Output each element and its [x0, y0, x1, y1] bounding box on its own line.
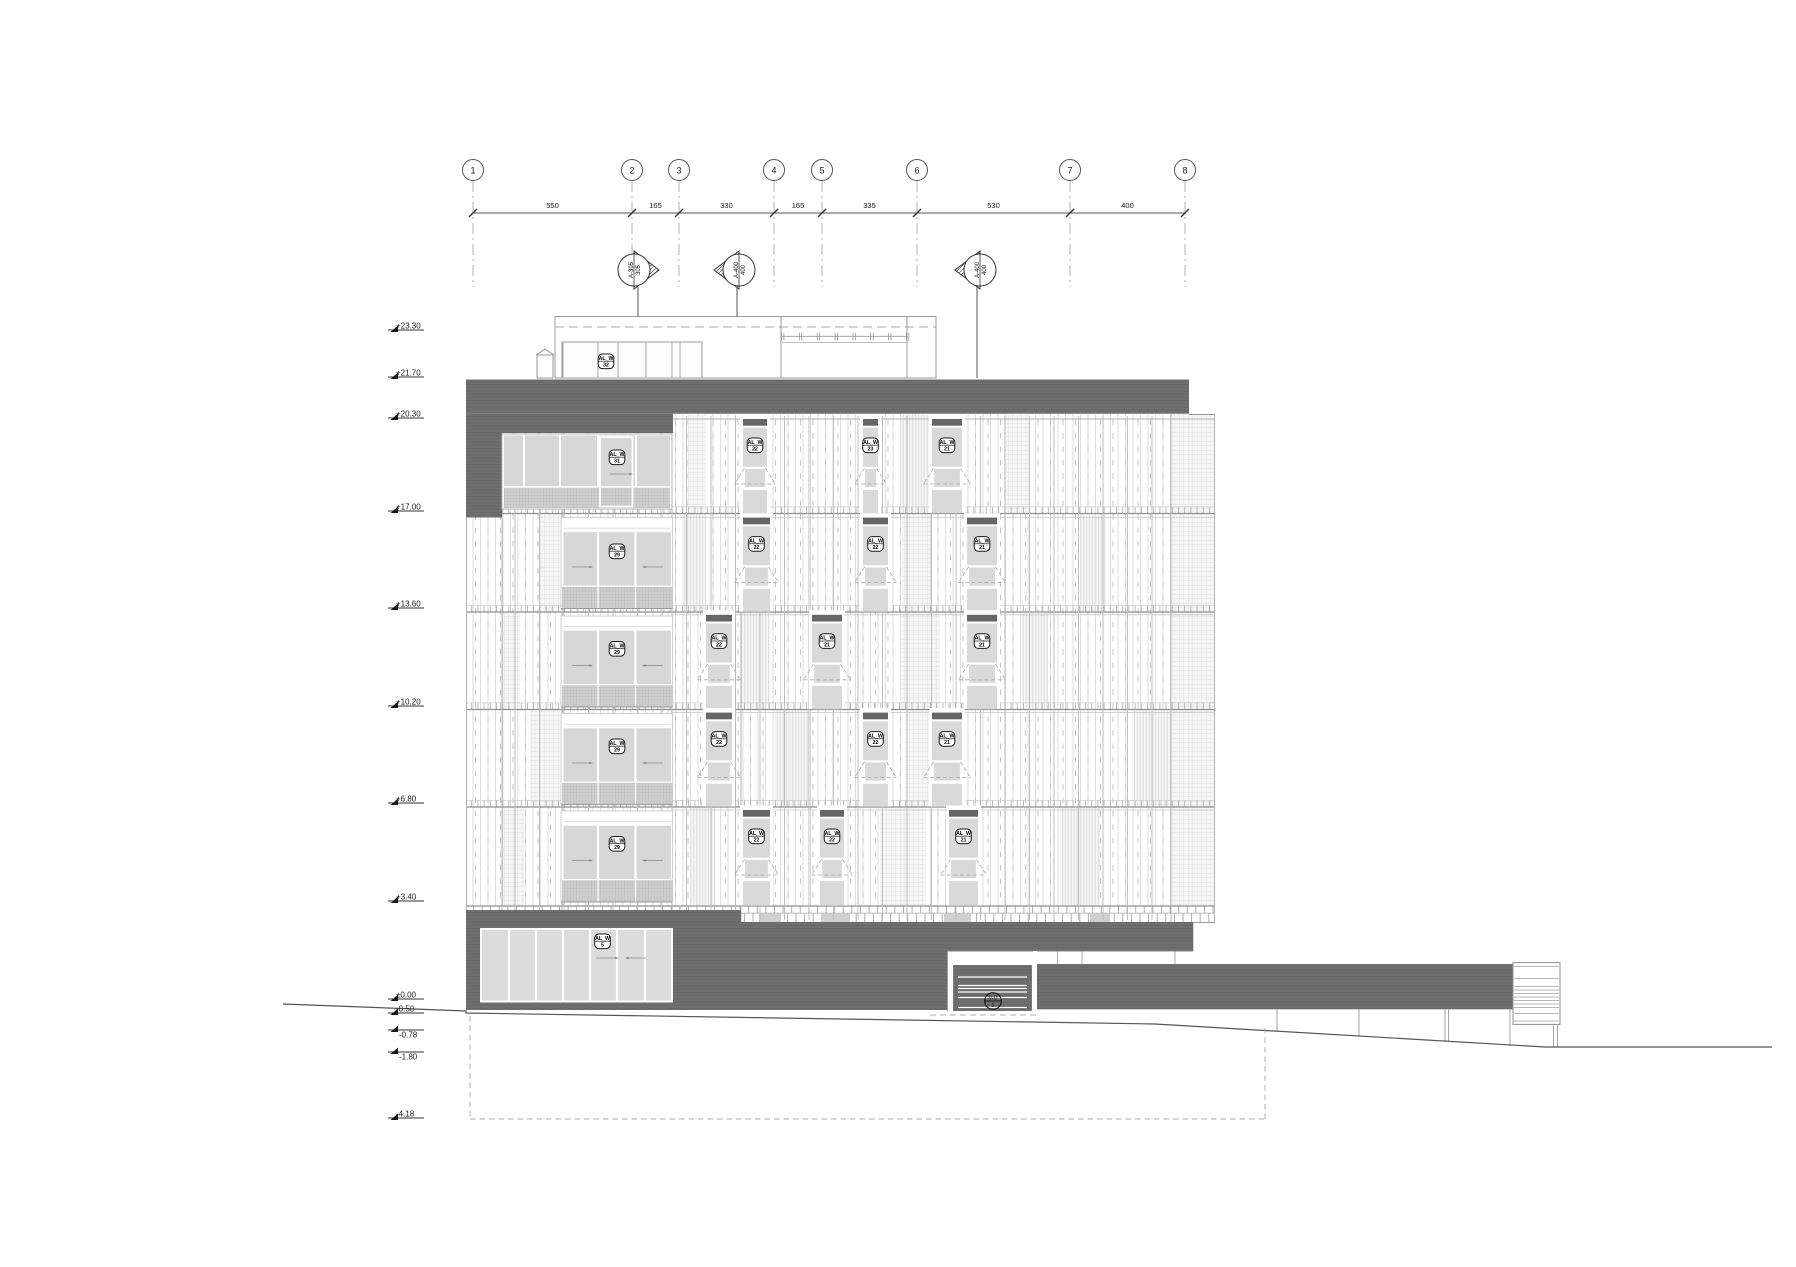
svg-text:1: 1: [470, 166, 475, 176]
svg-text:31: 31: [614, 459, 620, 465]
svg-text:550: 550: [546, 201, 559, 210]
svg-text:22: 22: [873, 545, 879, 551]
svg-text:2: 2: [629, 166, 634, 176]
svg-text:22: 22: [752, 447, 758, 453]
svg-text:32: 32: [603, 363, 609, 369]
svg-text:-4.18: -4.18: [396, 1110, 415, 1119]
svg-text:21: 21: [979, 545, 985, 551]
svg-text:5: 5: [601, 943, 604, 949]
svg-text:21: 21: [944, 740, 950, 746]
svg-text:22: 22: [829, 838, 835, 844]
svg-text:4: 4: [771, 166, 776, 176]
svg-text:23: 23: [868, 447, 874, 453]
svg-text:+10.20: +10.20: [396, 698, 421, 707]
svg-text:22: 22: [873, 740, 879, 746]
svg-text:21: 21: [824, 642, 830, 648]
svg-text:±0.00: ±0.00: [396, 991, 417, 1000]
svg-text:165: 165: [649, 201, 662, 210]
svg-text:-0.78: -0.78: [399, 1031, 418, 1040]
svg-text:+23.30: +23.30: [396, 322, 421, 331]
svg-text:335: 335: [863, 201, 876, 210]
svg-text:+17.00: +17.00: [396, 503, 421, 512]
svg-text:+6.80: +6.80: [396, 795, 417, 804]
svg-text:22: 22: [754, 545, 760, 551]
svg-text:3: 3: [676, 166, 681, 176]
svg-text:29: 29: [614, 748, 620, 754]
svg-text:-0.50: -0.50: [396, 1005, 415, 1014]
svg-text:V-D: V-D: [989, 995, 998, 1001]
svg-text:165: 165: [792, 201, 805, 210]
svg-text:5: 5: [992, 1003, 995, 1009]
svg-text:29: 29: [614, 553, 620, 559]
svg-text:530: 530: [987, 201, 1000, 210]
svg-text:+3.40: +3.40: [396, 893, 417, 902]
svg-text:+20.30: +20.30: [396, 410, 421, 419]
svg-text:7: 7: [1067, 166, 1072, 176]
svg-text:21: 21: [961, 838, 967, 844]
svg-text:5: 5: [819, 166, 824, 176]
svg-text:8: 8: [1182, 166, 1187, 176]
svg-text:22: 22: [716, 642, 722, 648]
svg-text:21: 21: [944, 447, 950, 453]
svg-text:21: 21: [979, 642, 985, 648]
svg-text:22: 22: [716, 740, 722, 746]
svg-text:+21.70: +21.70: [396, 369, 421, 378]
svg-text:330: 330: [720, 201, 733, 210]
svg-text:+13.60: +13.60: [396, 600, 421, 609]
svg-text:-1.80: -1.80: [399, 1053, 418, 1062]
svg-text:6: 6: [914, 166, 919, 176]
svg-text:400: 400: [1121, 201, 1134, 210]
svg-text:22: 22: [754, 838, 760, 844]
svg-text:29: 29: [614, 845, 620, 851]
svg-text:29: 29: [614, 650, 620, 656]
